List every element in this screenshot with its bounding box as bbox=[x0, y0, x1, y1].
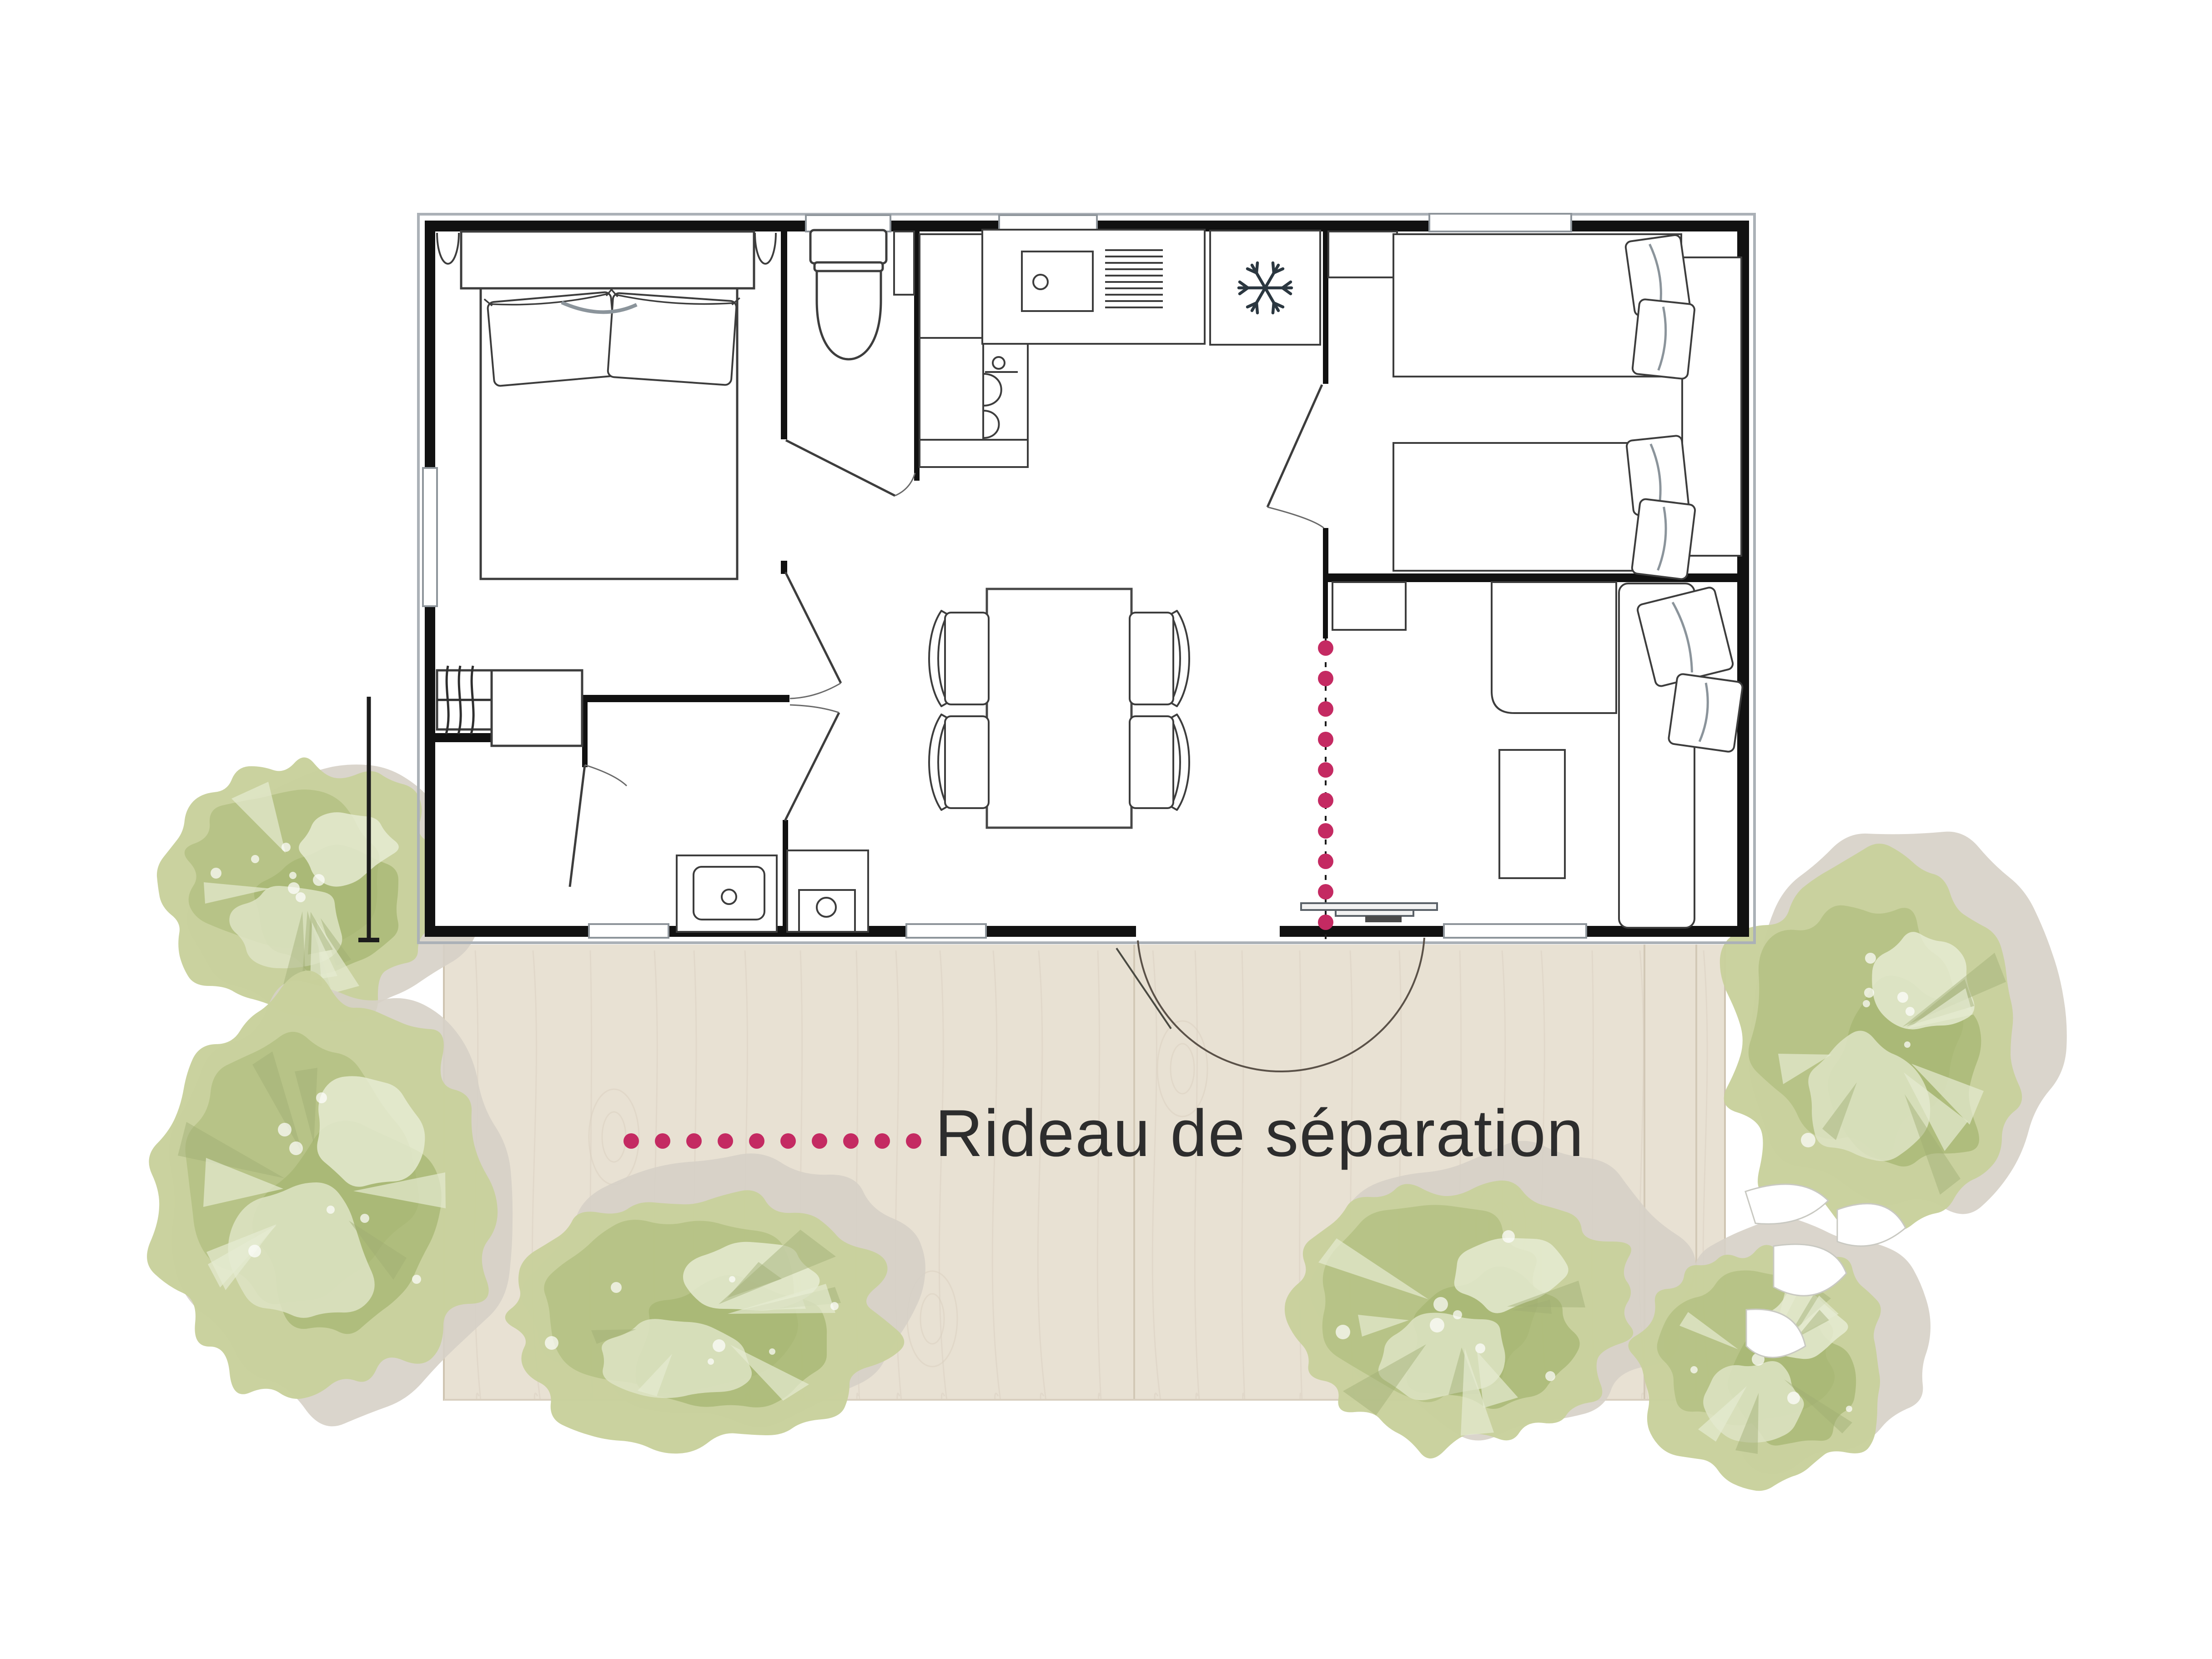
svg-text:Rideau de séparation: Rideau de séparation bbox=[935, 1096, 1584, 1170]
